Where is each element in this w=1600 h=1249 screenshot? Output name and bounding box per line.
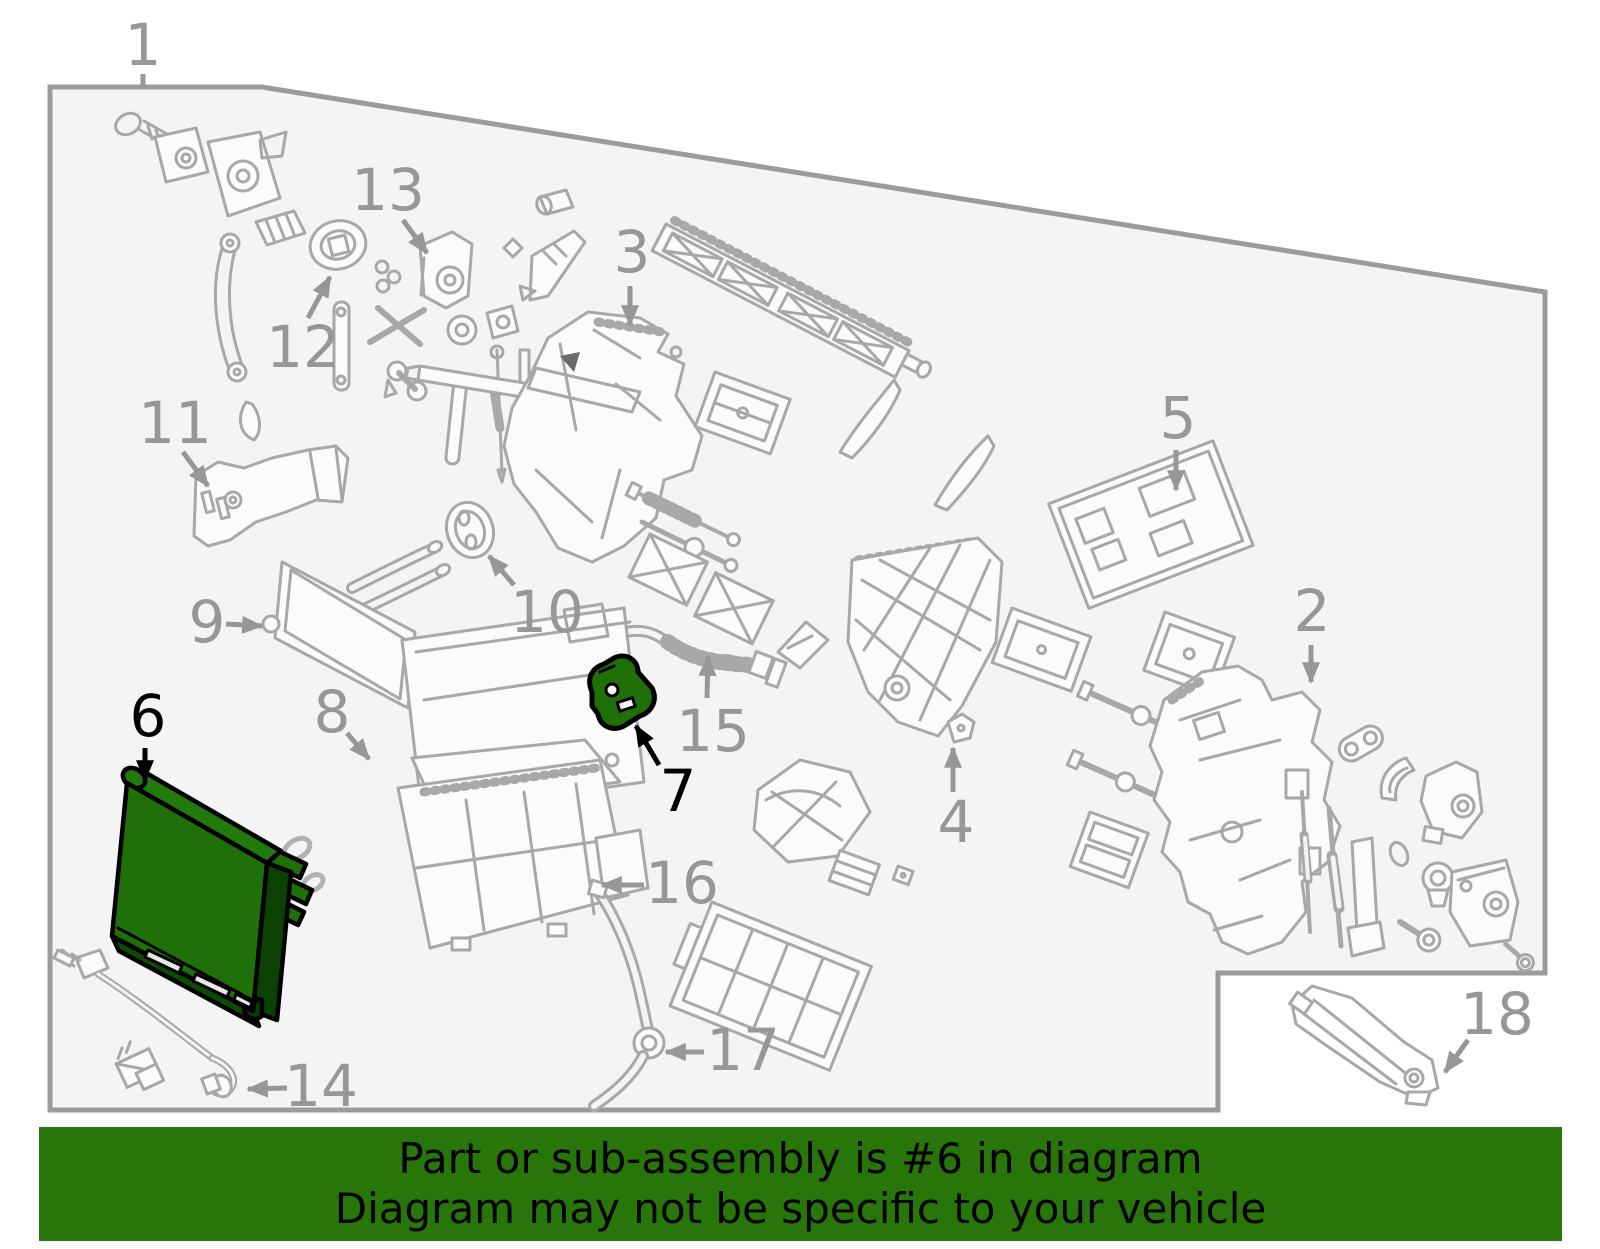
callout-16: 16 (645, 854, 719, 912)
result-banner: Part or sub-assembly is #6 in diagram Di… (39, 1127, 1562, 1241)
callout-6: 6 (130, 687, 167, 745)
callout-arrow-15 (707, 656, 708, 698)
callout-3: 3 (614, 223, 651, 281)
callout-15: 15 (676, 702, 750, 760)
callout-18: 18 (1460, 985, 1534, 1043)
callout-9: 9 (189, 593, 226, 651)
banner-line-2: Diagram may not be specific to your vehi… (335, 1184, 1266, 1234)
callout-5: 5 (1160, 389, 1197, 447)
part-4-clip (948, 714, 974, 742)
callout-arrow-9 (226, 624, 262, 626)
callout-4: 4 (938, 793, 975, 851)
callout-arrow-14 (248, 1088, 287, 1089)
part-18-bracket (1290, 986, 1438, 1105)
callout-7: 7 (660, 762, 697, 820)
callout-2: 2 (1294, 582, 1331, 640)
washer-angular (487, 306, 518, 338)
callout-17: 17 (706, 1021, 780, 1079)
diagram-page: 123456789101112131415161718 Part or sub-… (0, 0, 1600, 1249)
callout-10: 10 (510, 583, 584, 641)
callout-12: 12 (266, 318, 340, 376)
part-13-actuator (420, 232, 472, 308)
callout-11: 11 (138, 394, 212, 452)
parts-diagram-svg (0, 0, 1600, 1249)
callout-14: 14 (284, 1057, 358, 1115)
callout-13: 13 (351, 161, 425, 219)
callout-8: 8 (314, 683, 351, 741)
banner-line-1: Part or sub-assembly is #6 in diagram (398, 1134, 1202, 1184)
callout-1: 1 (125, 16, 162, 74)
washer-donut (448, 316, 476, 344)
